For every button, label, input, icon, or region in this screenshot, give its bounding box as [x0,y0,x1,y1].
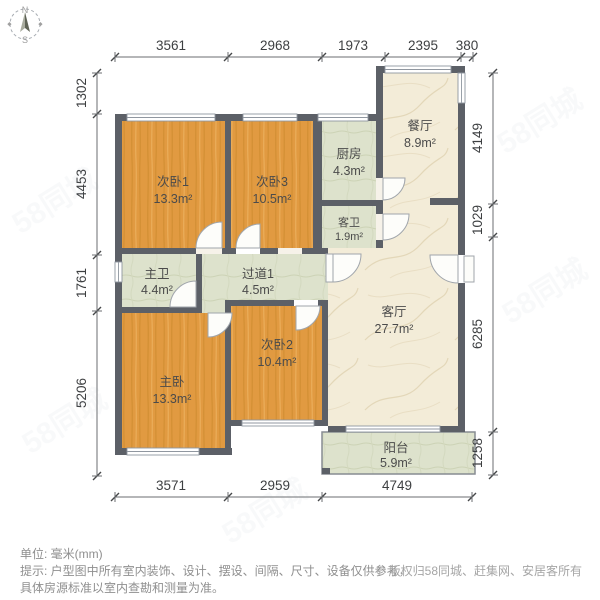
living-balcony-window [346,426,440,432]
dim-bottom-1: 3571 [156,478,186,493]
hallway-opening [278,248,302,254]
svg-text:厨房: 厨房 [336,146,361,161]
svg-text:10.5m²: 10.5m² [253,192,292,206]
svg-text:过道1: 过道1 [242,267,274,281]
svg-text:客厅: 客厅 [381,304,406,319]
compass-south-label: S [22,35,28,45]
bedroom-master-window [127,448,199,455]
svg-text:次卧1: 次卧1 [157,175,189,189]
dim-right-2: 1029 [470,205,485,235]
svg-text:13.3m²: 13.3m² [154,192,193,206]
footer-unit-line: 单位: 毫米(mm) [20,545,103,562]
svg-text:主卫: 主卫 [144,267,169,281]
watermark-text: 58同城 [7,163,104,240]
floorplan-page: 3561 2968 1973 2395 380 1302 4453 1761 5… [0,0,600,600]
kitchen-door-gap [376,178,383,200]
bath-guest-door-gap [376,214,383,240]
bedroom1-window [127,114,215,121]
svg-text:4.3m²: 4.3m² [333,164,365,178]
room-floors [122,73,475,474]
svg-text:次卧2: 次卧2 [261,338,293,352]
dim-top-5: 380 [456,38,479,53]
svg-text:4.4m²: 4.4m² [141,283,173,297]
svg-text:10.4m²: 10.4m² [258,355,297,369]
footer-copyright: © 版权归58同城、赶集网、安居客所有 [376,562,582,579]
hallway-door-leaf [326,254,333,282]
vestibule-floor [202,254,225,313]
svg-text:客卫: 客卫 [338,215,360,229]
dim-top-1: 3561 [156,38,186,53]
entry-door-leaf [464,256,474,282]
footer-hint-line1: 提示: 户型图中所有室内装饰、设计、摆设、间隔、尺寸、设备仅供参考， [20,562,411,579]
svg-text:5.9m²: 5.9m² [380,456,412,470]
watermark-text: 58同城 [497,253,594,330]
compass-icon: N S [7,5,42,45]
dining-window [385,66,451,73]
dim-top-3: 1973 [338,38,368,53]
dim-bottom-3: 4749 [382,478,412,493]
svg-text:13.3m²: 13.3m² [153,392,192,406]
svg-text:27.7m²: 27.7m² [375,322,414,336]
bath-master-window [115,262,122,282]
bedroom3-window [243,114,297,121]
dim-left-1: 1302 [74,78,89,108]
watermark-text: 58同城 [17,383,114,460]
dim-right-4: 1258 [470,438,485,468]
dim-top-2: 2968 [260,38,290,53]
compass-north-label: N [22,5,29,15]
dining-side-window [458,73,465,103]
svg-text:主卧: 主卧 [159,375,184,389]
dim-left-3: 1761 [74,268,89,298]
floorplan-drawing: 3561 2968 1973 2395 380 1302 4453 1761 5… [0,0,600,600]
svg-text:8.9m²: 8.9m² [404,136,436,150]
svg-text:1.9m²: 1.9m² [335,231,363,243]
footer-hint-line2: 具体房源标准以室内查勘和测量为准。 [20,579,224,596]
svg-text:阳台: 阳台 [383,440,408,455]
svg-text:餐厅: 餐厅 [407,118,432,133]
bedroom1-door-gap [196,248,222,254]
dim-right-3: 6285 [470,319,485,349]
kitchen-window [318,114,368,121]
bedroom2-window [242,420,314,426]
watermark-text: 58同城 [492,83,589,160]
svg-text:次卧3: 次卧3 [256,175,288,189]
dim-top-4: 2395 [408,38,438,53]
svg-text:4.5m²: 4.5m² [242,283,274,297]
dim-right-1: 4149 [470,123,485,153]
